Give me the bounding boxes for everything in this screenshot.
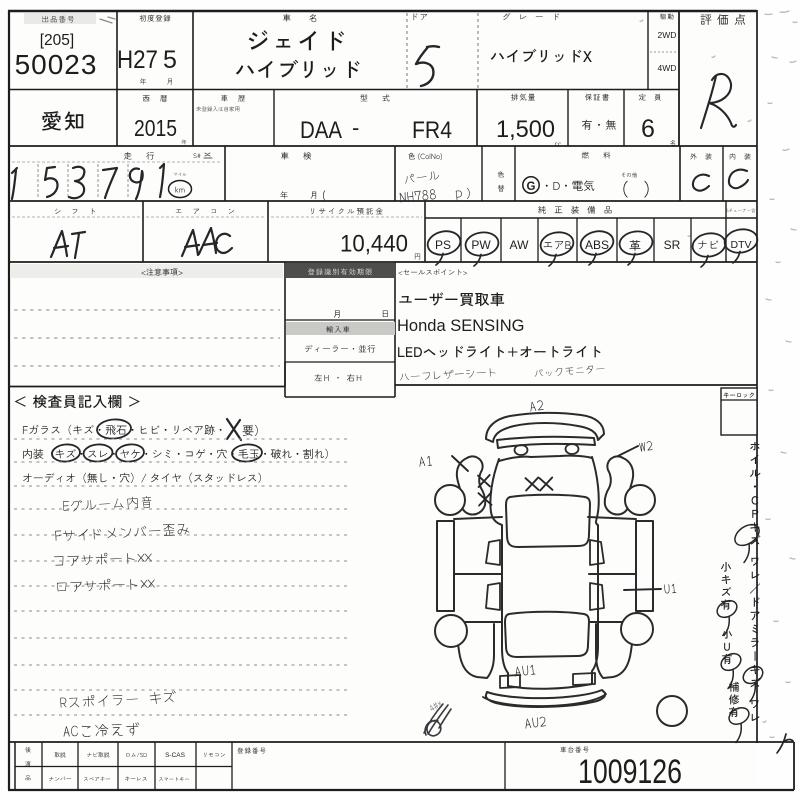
- svg-text:DAA: DAA: [300, 117, 342, 144]
- svg-text:2WD: 2WD: [658, 30, 677, 40]
- svg-text:G: G: [527, 181, 536, 193]
- svg-text:PS: PS: [435, 238, 451, 252]
- svg-text:50023: 50023: [15, 49, 98, 80]
- svg-text:1009126: 1009126: [578, 753, 682, 791]
- svg-text:1,500: 1,500: [496, 116, 555, 143]
- svg-text:2015: 2015: [134, 115, 177, 141]
- svg-text:S-CAS: S-CAS: [165, 752, 186, 759]
- svg-text:ABS: ABS: [585, 238, 609, 252]
- svg-text:4WD: 4WD: [658, 63, 677, 73]
- svg-text:5: 5: [163, 46, 177, 74]
- svg-text:6: 6: [641, 115, 655, 143]
- svg-text:[205]: [205]: [40, 32, 74, 49]
- svg-text:PW: PW: [471, 238, 491, 252]
- svg-text:H27: H27: [117, 46, 158, 74]
- svg-text:Honda SENSING: Honda SENSING: [397, 317, 524, 335]
- svg-text:-: -: [352, 115, 359, 140]
- svg-text:FR4: FR4: [412, 117, 452, 144]
- svg-text:DTV: DTV: [731, 239, 752, 251]
- svg-text:AW: AW: [510, 238, 530, 252]
- svg-text:SR: SR: [664, 238, 681, 252]
- svg-text:10,440: 10,440: [340, 231, 408, 258]
